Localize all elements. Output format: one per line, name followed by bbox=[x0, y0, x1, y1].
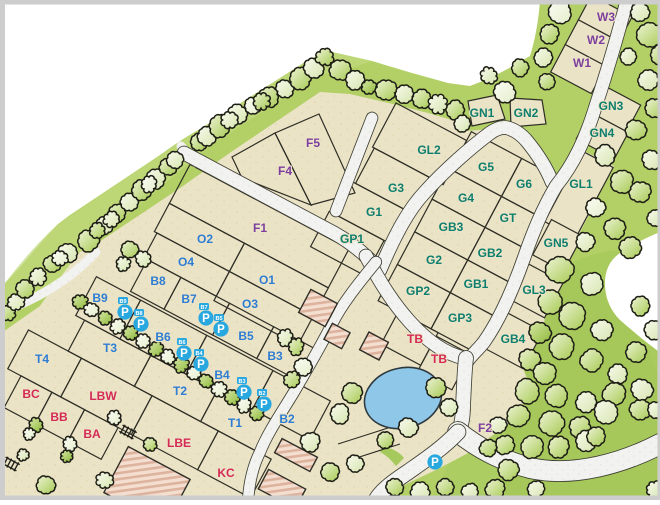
svg-text:G4: G4 bbox=[458, 191, 474, 205]
svg-text:B4: B4 bbox=[195, 351, 203, 357]
svg-text:W1: W1 bbox=[573, 56, 591, 70]
svg-text:B9: B9 bbox=[92, 291, 108, 305]
svg-text:TB: TB bbox=[407, 332, 423, 346]
svg-text:BA: BA bbox=[83, 427, 101, 441]
svg-text:GL2: GL2 bbox=[417, 143, 441, 157]
svg-text:W3: W3 bbox=[597, 10, 615, 24]
svg-text:O2: O2 bbox=[197, 232, 213, 246]
svg-text:O3: O3 bbox=[242, 297, 258, 311]
svg-text:GL3: GL3 bbox=[522, 283, 546, 297]
svg-text:B4: B4 bbox=[214, 368, 230, 382]
svg-text:B3: B3 bbox=[238, 379, 245, 385]
svg-text:GN1: GN1 bbox=[470, 106, 495, 120]
svg-text:G3: G3 bbox=[388, 181, 404, 195]
svg-text:B8: B8 bbox=[150, 274, 166, 288]
svg-text:P: P bbox=[431, 457, 439, 469]
svg-text:GN4: GN4 bbox=[590, 126, 615, 140]
svg-text:GB2: GB2 bbox=[478, 246, 503, 260]
svg-text:KC: KC bbox=[217, 466, 235, 480]
svg-text:G6: G6 bbox=[516, 177, 532, 191]
svg-text:P: P bbox=[202, 313, 210, 325]
svg-text:F5: F5 bbox=[306, 136, 320, 150]
svg-text:O1: O1 bbox=[259, 273, 275, 287]
svg-text:P: P bbox=[197, 359, 205, 371]
svg-text:P: P bbox=[240, 387, 248, 399]
svg-text:F2: F2 bbox=[478, 421, 492, 435]
svg-text:G1: G1 bbox=[366, 205, 382, 219]
svg-text:F1: F1 bbox=[253, 221, 267, 235]
svg-text:BB: BB bbox=[50, 410, 68, 424]
svg-text:BC: BC bbox=[22, 387, 40, 401]
svg-text:GB1: GB1 bbox=[464, 277, 489, 291]
svg-text:W2: W2 bbox=[587, 33, 605, 47]
svg-text:P: P bbox=[260, 399, 268, 411]
svg-text:B9: B9 bbox=[119, 299, 126, 305]
svg-text:B2: B2 bbox=[279, 412, 295, 426]
svg-text:GB3: GB3 bbox=[439, 220, 464, 234]
svg-text:P: P bbox=[137, 319, 145, 331]
svg-text:T2: T2 bbox=[173, 384, 187, 398]
svg-text:B6: B6 bbox=[178, 340, 185, 346]
svg-text:LBE: LBE bbox=[167, 436, 191, 450]
svg-text:GB4: GB4 bbox=[501, 332, 526, 346]
svg-text:GN3: GN3 bbox=[599, 99, 624, 113]
svg-text:GN2: GN2 bbox=[514, 106, 539, 120]
svg-text:T3: T3 bbox=[103, 341, 117, 355]
svg-text:GT: GT bbox=[500, 211, 517, 225]
svg-text:B8: B8 bbox=[135, 311, 142, 317]
svg-text:G2: G2 bbox=[426, 253, 442, 267]
svg-text:F4: F4 bbox=[278, 164, 292, 178]
svg-text:T4: T4 bbox=[35, 352, 49, 366]
svg-text:B5: B5 bbox=[215, 316, 222, 322]
svg-text:O4: O4 bbox=[178, 255, 194, 269]
svg-text:GP1: GP1 bbox=[340, 232, 364, 246]
svg-text:GP3: GP3 bbox=[448, 311, 472, 325]
svg-text:P: P bbox=[217, 324, 225, 336]
svg-text:GN5: GN5 bbox=[544, 236, 569, 250]
svg-text:T1: T1 bbox=[228, 416, 242, 430]
svg-text:B7: B7 bbox=[181, 292, 197, 306]
svg-text:P: P bbox=[121, 307, 129, 319]
svg-text:B7: B7 bbox=[200, 305, 207, 311]
svg-text:LBW: LBW bbox=[89, 389, 117, 403]
svg-text:B6: B6 bbox=[155, 330, 171, 344]
svg-text:B5: B5 bbox=[238, 329, 254, 343]
svg-text:G5: G5 bbox=[478, 160, 494, 174]
svg-text:TB: TB bbox=[431, 352, 447, 366]
svg-text:P: P bbox=[180, 348, 188, 360]
svg-text:B3: B3 bbox=[267, 349, 283, 363]
svg-text:B2: B2 bbox=[258, 391, 265, 397]
svg-text:GL1: GL1 bbox=[569, 177, 593, 191]
svg-text:GP2: GP2 bbox=[406, 284, 430, 298]
